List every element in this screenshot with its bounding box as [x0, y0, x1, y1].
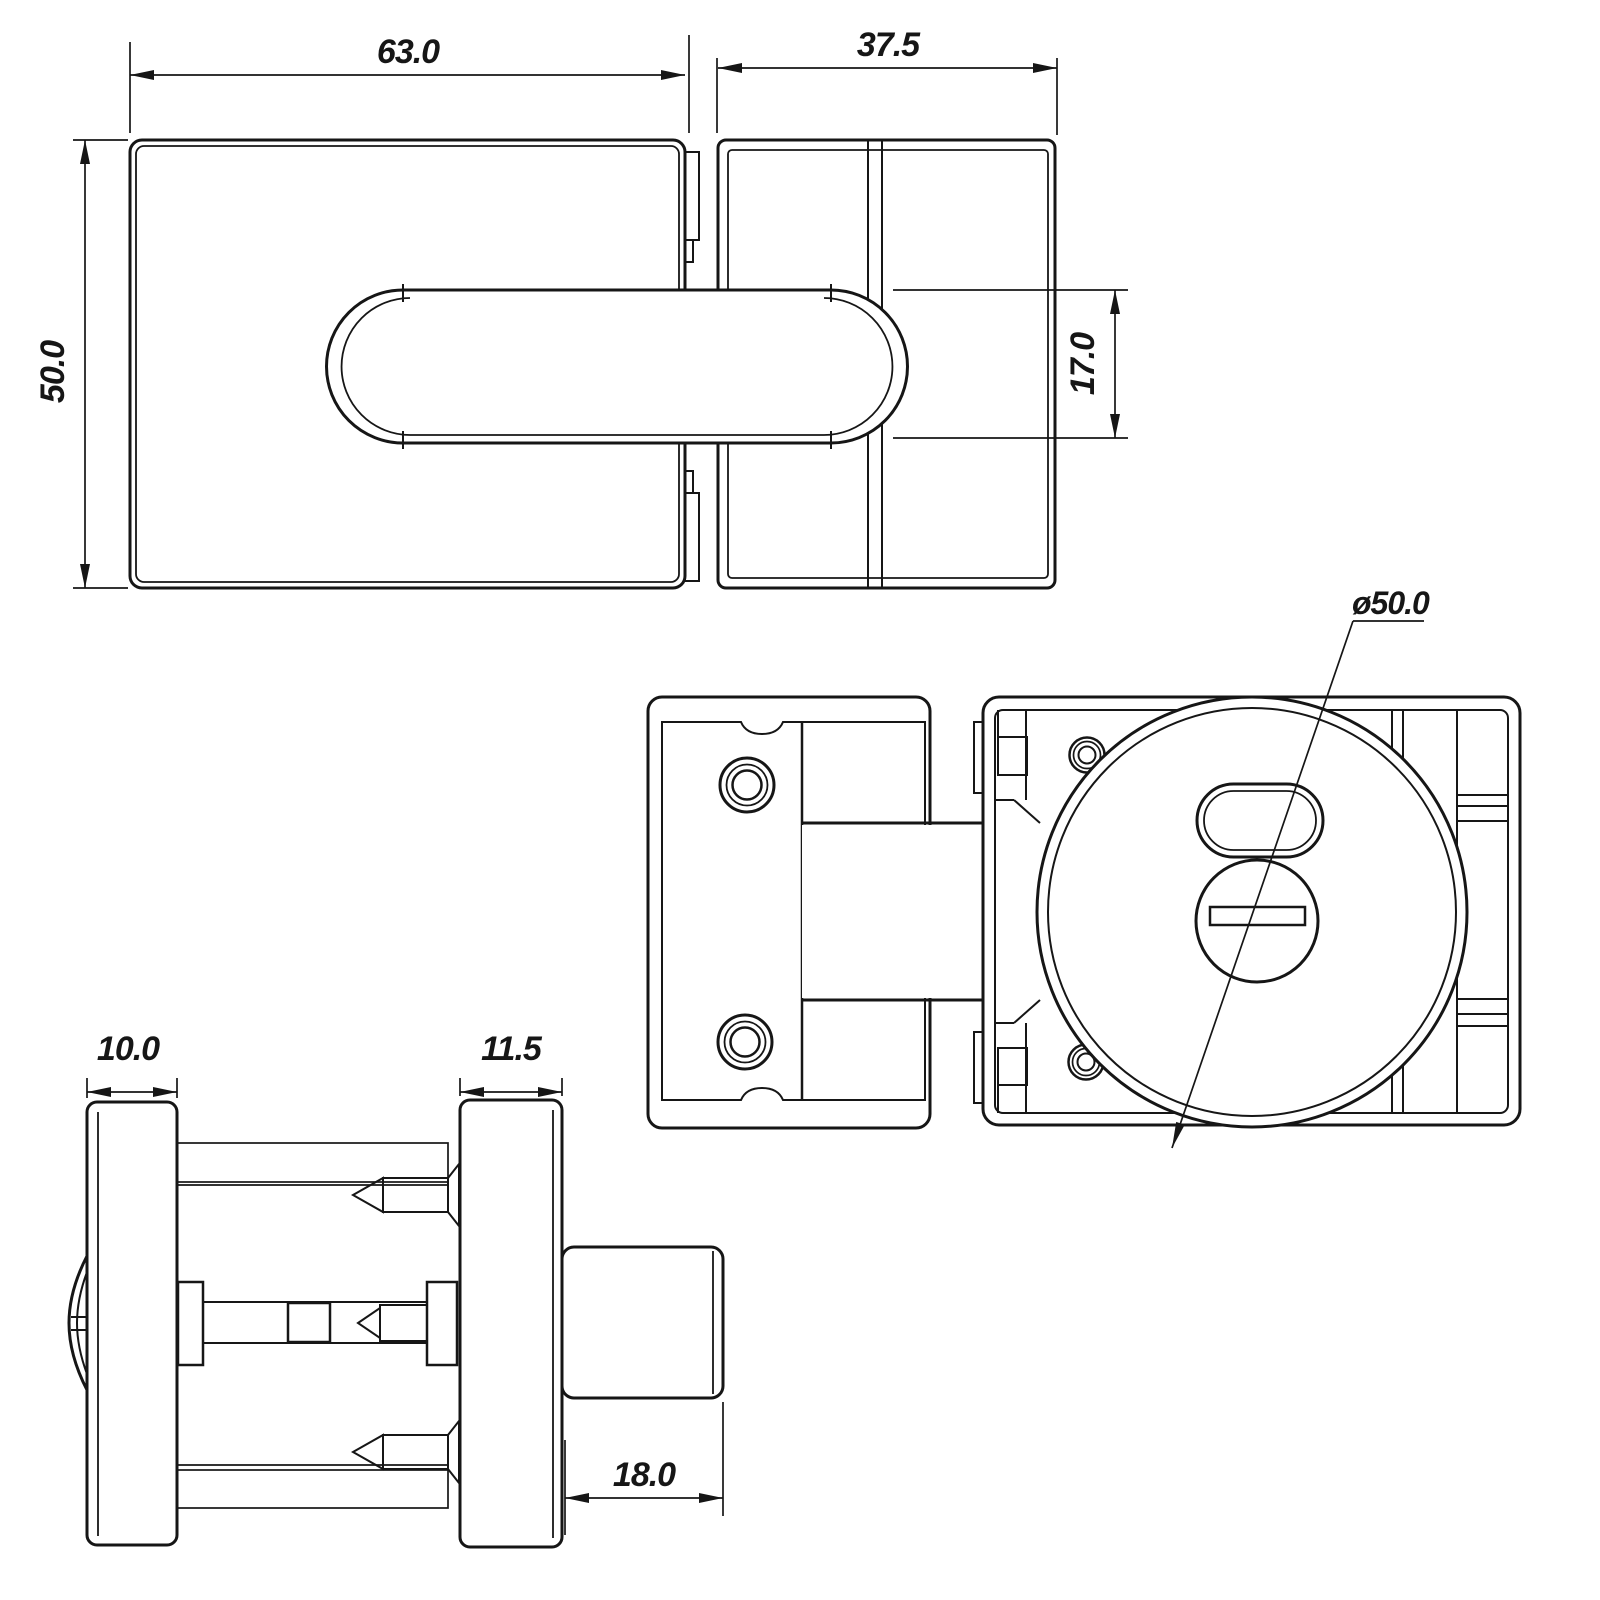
bolt-bar [327, 284, 908, 449]
threaded-post-top [177, 1143, 448, 1182]
dim-11-5-label: 11.5 [481, 1030, 543, 1068]
bolt-bridge [802, 823, 983, 1000]
dimension-body-width: 63.0 [130, 33, 689, 133]
latch-tab-top [685, 152, 699, 240]
plan-view: 63.0 37.5 50.0 17.0 [34, 26, 1128, 588]
dim-50-label: 50.0 [34, 340, 72, 403]
side-view: 10.0 11.5 18.0 [69, 1030, 723, 1547]
indicator-body-view: ø50.0 [974, 585, 1520, 1148]
dim-17-label: 17.0 [1064, 332, 1102, 395]
fixing-screw-bottom [353, 1421, 459, 1483]
dim-18-label: 18.0 [613, 1456, 676, 1494]
indicator-window [1197, 784, 1323, 857]
dim-63-label: 63.0 [377, 33, 440, 71]
dimension-body-height: 50.0 [34, 140, 128, 588]
dimension-plate-thickness: 11.5 [460, 1030, 562, 1097]
dim-37-5-label: 37.5 [857, 26, 921, 64]
dim-10-label: 10.0 [97, 1030, 160, 1068]
dimension-strike-width: 37.5 [717, 26, 1057, 135]
spindle-screw-head-right [427, 1282, 457, 1365]
coin-turn-release [1196, 860, 1318, 982]
threaded-post-bottom [177, 1470, 448, 1508]
body-plate [460, 1100, 562, 1547]
bolt-cylinder [562, 1247, 723, 1398]
spindle-screw-head-left [178, 1282, 203, 1365]
rose-plate [87, 1102, 177, 1545]
lock-engineering-drawing: 63.0 37.5 50.0 17.0 [0, 0, 1600, 1600]
drawing-canvas: 63.0 37.5 50.0 17.0 [0, 0, 1600, 1600]
latch-tab-bottom [685, 493, 699, 581]
square-spindle [288, 1303, 330, 1342]
dimension-bolt-projection: 18.0 [565, 1402, 723, 1535]
fixing-screw-top [353, 1164, 459, 1226]
dimension-rose-thickness: 10.0 [87, 1030, 177, 1098]
dim-dia50-label: ø50.0 [1352, 585, 1430, 621]
spindle-assembly [178, 1282, 457, 1365]
